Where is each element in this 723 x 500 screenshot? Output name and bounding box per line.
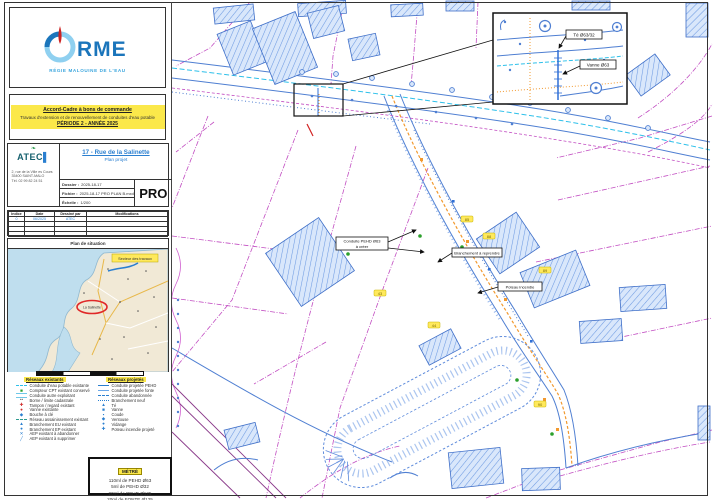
panel-divider <box>171 2 172 495</box>
file-info-rows: Dossier :2025-18-17 Fichier :2025-18-17 … <box>60 180 134 206</box>
notice-line-2: Travaux d'extension et de renouvellement… <box>12 115 164 120</box>
fichier-row: Fichier :2025-18-17 PRO PLAN B.mxd <box>60 189 134 198</box>
legend-symbol-icon <box>98 400 109 401</box>
notice-highlight: Accord-Cadre à bons de commande Travaux … <box>11 105 165 129</box>
situation-map-title: Plan de situation <box>8 239 168 249</box>
quantities-header: MÉTRÉ <box>118 468 142 475</box>
legend-symbol-icon <box>98 395 109 396</box>
title-block: ❧ ATEC▌ 2, rue de la Ville es Cours 3540… <box>7 143 169 207</box>
notice-box: Accord-Cadre à bons de commande Travaux … <box>9 94 166 140</box>
situation-map-box: Plan de situation <box>7 238 169 372</box>
drawing-subtitle: Plan projet <box>60 158 172 163</box>
atec-address: 2, rue de la Ville es Cours 35400 SAINT-… <box>12 170 56 183</box>
legend-project-items: Conduite projetée PEHDConduite projetée … <box>98 384 170 432</box>
svg-text:RME: RME <box>77 38 127 61</box>
atec-company: ATEC▌ <box>17 152 50 162</box>
legend-symbol-icon <box>16 419 27 420</box>
quantities-box: MÉTRÉ 110ml de PEHD Ø635ml de PEHD Ø3220… <box>88 457 172 495</box>
logo-drop-icon <box>58 26 61 44</box>
legend-symbol-icon <box>98 390 109 391</box>
legend-symbol-icon: ✚ <box>98 427 109 431</box>
legend-symbol-icon: ◆ <box>16 413 27 417</box>
phase-stamp: PRO <box>134 180 172 206</box>
legend-symbol-icon <box>16 385 27 386</box>
legend-existing: Réseaux existants Conduite d'eau potable… <box>16 377 94 441</box>
notice-line-3: PÉRIODE 2 - ANNÉE 2025 <box>12 121 164 127</box>
quantities-lines: 110ml de PEHD Ø635ml de PEHD Ø3220ml de … <box>90 478 170 500</box>
drawing-title-cell: 17 - Rue de la Salinette Plan projet <box>60 144 172 180</box>
map-scale-bar <box>36 371 144 376</box>
drawing-title: 17 - Rue de la Salinette <box>60 149 172 156</box>
map-works-label: Secteur des travaux <box>112 254 158 262</box>
legend-project-header: Réseaux projetés <box>106 377 146 382</box>
revision-table-box: IndiceDateDessiné parModifications 006/2… <box>7 210 169 236</box>
revision-row <box>9 232 168 237</box>
revision-table-body: 006/2025ATEC <box>9 217 168 237</box>
legend-symbol-icon: ■ <box>16 389 27 393</box>
rme-tagline: RÉGIE MALOUINE DE L'EAU <box>49 68 125 73</box>
plan-sheet: Té Ø63/32 Vanne Ø63 85 88 89 44 90 43 Co… <box>0 0 723 500</box>
legend-existing-header: Réseaux existants <box>24 377 66 382</box>
rme-logo: RME <box>40 23 136 67</box>
situation-map: Secteur des travaux La Salinette <box>8 249 168 377</box>
legend-symbol-icon <box>98 385 109 386</box>
notice-line-1: Accord-Cadre à bons de commande <box>12 107 164 113</box>
revision-table: IndiceDateDessiné parModifications 006/2… <box>8 211 168 237</box>
legend-item: ✚Poteau incendie projeté <box>98 427 170 432</box>
legend-item: ╱AEP existant à supprimer <box>16 436 94 441</box>
svg-text:Secteur des travaux: Secteur des travaux <box>118 257 152 261</box>
dossier-row: Dossier :2025-18-17 <box>60 180 134 189</box>
situation-map-canvas: Secteur des travaux La Salinette <box>8 249 168 372</box>
atec-cell: ❧ ATEC▌ 2, rue de la Ville es Cours 3540… <box>8 144 60 206</box>
echelle-row: Échelle :1/200 <box>60 198 134 206</box>
legend-symbol-icon: ╱ <box>16 437 27 441</box>
legend-existing-items: Conduite d'eau potable existante■Compteu… <box>16 384 94 442</box>
legend-project: Réseaux projetés Conduite projetée PEHDC… <box>98 377 170 431</box>
svg-text:La Salinette: La Salinette <box>83 306 101 310</box>
rme-logo-box: RME RÉGIE MALOUINE DE L'EAU <box>9 7 166 88</box>
